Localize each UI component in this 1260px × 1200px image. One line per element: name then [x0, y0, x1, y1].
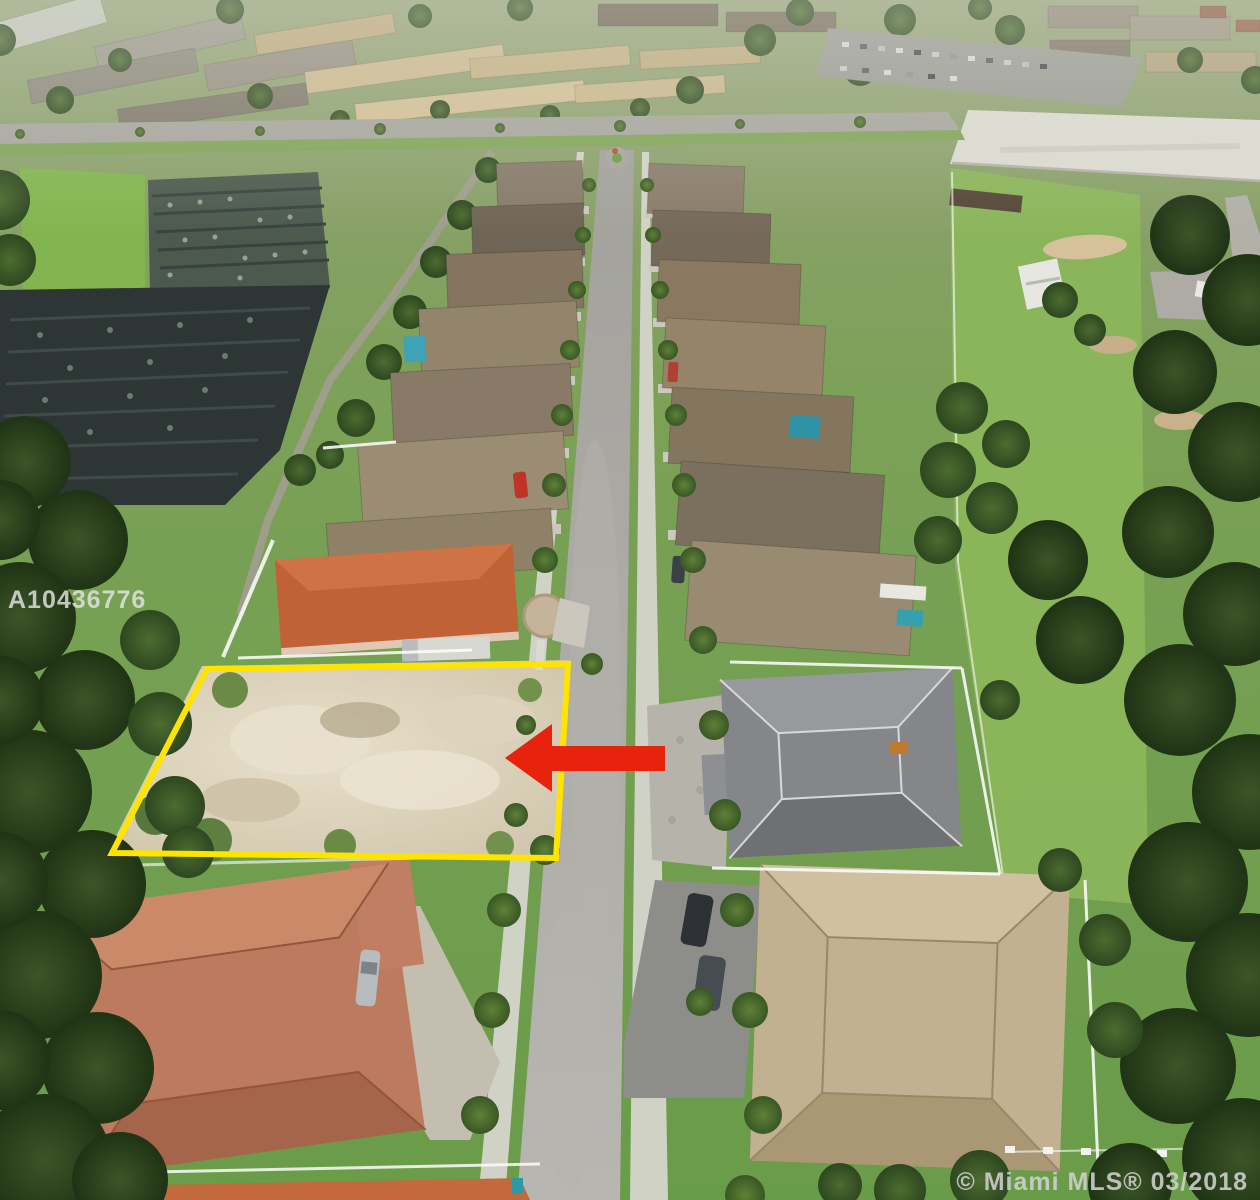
- playset: [890, 742, 909, 755]
- gray-roof-house: [698, 668, 962, 859]
- tan-roof-house: [750, 865, 1070, 1172]
- aerial-photo: A10436776 © Miami MLS® 03/2018: [0, 0, 1260, 1200]
- mls-id-watermark: A10436776: [8, 586, 146, 614]
- trash-bin: [512, 1178, 523, 1194]
- distance-haze: [0, 0, 1260, 235]
- red-car: [513, 471, 529, 498]
- copyright-watermark: © Miami MLS® 03/2018: [956, 1168, 1248, 1196]
